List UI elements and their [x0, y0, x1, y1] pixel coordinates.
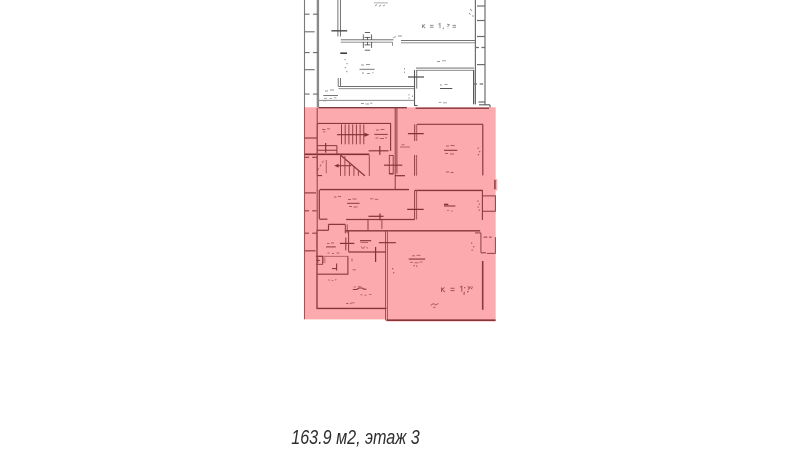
svg-text:163.9 м2, этаж 3: 163.9 м2, этаж 3	[291, 427, 420, 449]
